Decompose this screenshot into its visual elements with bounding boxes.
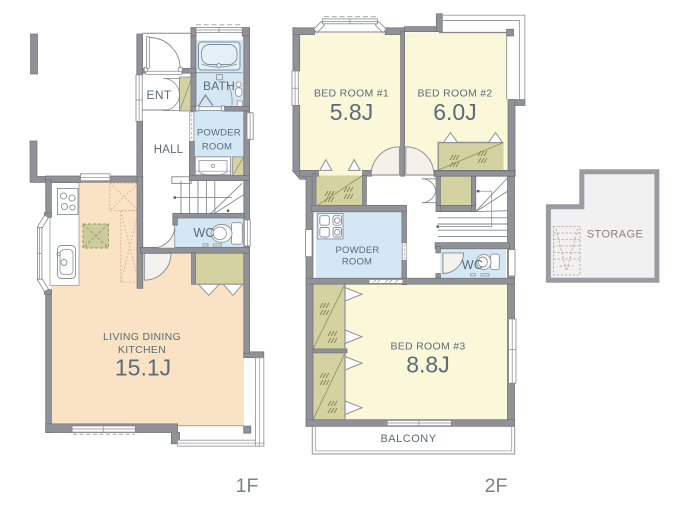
svg-text:ENT: ENT <box>147 88 172 102</box>
svg-text:WC: WC <box>462 258 483 272</box>
svg-text:8.8J: 8.8J <box>406 352 449 378</box>
svg-text:BED ROOM #2: BED ROOM #2 <box>417 88 492 100</box>
svg-text:BED ROOM #1: BED ROOM #1 <box>314 88 389 100</box>
svg-text:5.8J: 5.8J <box>330 99 373 125</box>
svg-text:WC: WC <box>193 226 214 240</box>
svg-text:HALL: HALL <box>154 144 184 156</box>
svg-text:6.0J: 6.0J <box>433 99 476 125</box>
svg-text:1F: 1F <box>236 475 259 497</box>
svg-text:2F: 2F <box>485 475 508 497</box>
svg-text:LIVING DINING: LIVING DINING <box>103 331 181 343</box>
svg-text:STORAGE: STORAGE <box>587 229 643 241</box>
svg-text:ROOM: ROOM <box>342 257 372 268</box>
svg-text:ROOM: ROOM <box>202 142 232 153</box>
svg-text:15.1J: 15.1J <box>115 355 171 381</box>
svg-text:BATH: BATH <box>203 79 235 93</box>
svg-text:POWDER: POWDER <box>197 128 241 139</box>
svg-text:BALCONY: BALCONY <box>380 433 436 445</box>
svg-text:POWDER: POWDER <box>336 245 380 256</box>
